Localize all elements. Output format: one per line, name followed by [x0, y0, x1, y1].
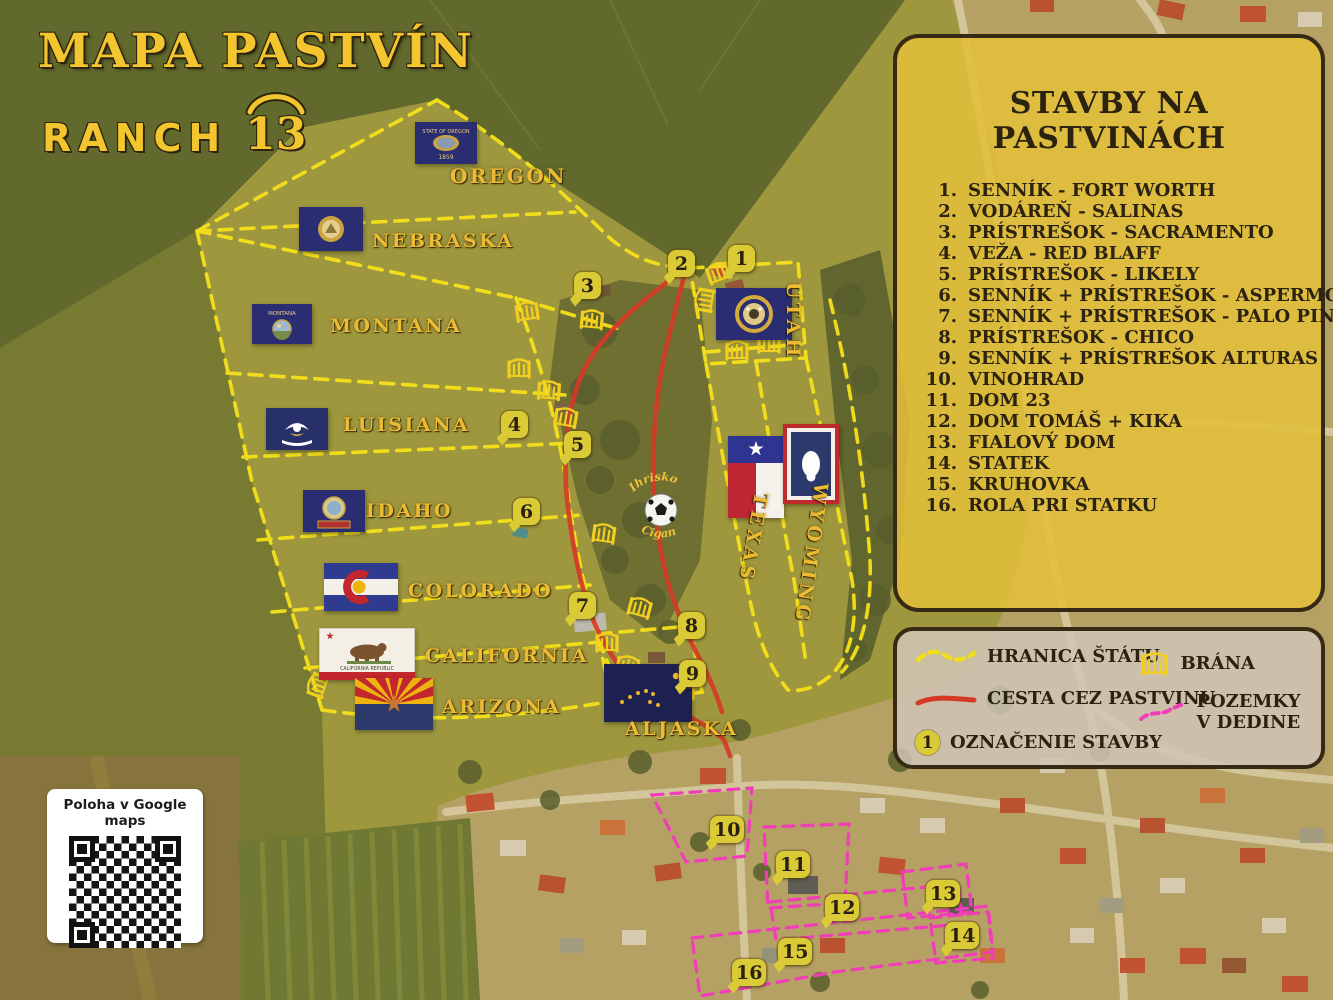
flag-nebraska-icon: [299, 207, 363, 255]
state-label-oregon: OREGON: [450, 164, 567, 188]
map-marker: 4: [501, 411, 528, 438]
qr-finder-icon: [69, 922, 95, 948]
map-marker: 16: [732, 959, 766, 986]
legend-item: 10.VINOHRAD: [917, 369, 1301, 390]
flag-idaho-icon: [303, 490, 365, 536]
flag-arizona-icon: [355, 678, 433, 734]
state-label-idaho: IDAHO: [366, 500, 453, 522]
legend-item: 14.STATEK: [917, 453, 1301, 474]
road-line-icon: [915, 691, 977, 707]
flag-louisiana-icon: [266, 408, 328, 454]
legend-item: 3.PRÍSTREŠOK - SACRAMENTO: [917, 222, 1301, 243]
ranch-brand-number: 13: [245, 109, 306, 160]
map-marker: 2: [668, 250, 695, 277]
flag-utah-icon: [716, 288, 792, 344]
brand-arc-icon: [242, 87, 310, 115]
state-label-montana: MONTANA: [330, 315, 462, 337]
boundary-line-icon: [915, 645, 977, 667]
legend-item: 15.KRUHOVKA: [917, 474, 1301, 495]
flag-colorado-icon: [324, 563, 398, 615]
state-label-nebraska: NEBRASKA: [372, 230, 515, 252]
legend-item: 9.SENNÍK + PRÍSTREŠOK ALTURAS: [917, 348, 1301, 369]
map-marker: 6: [513, 498, 540, 525]
legend-item: 6.SENNÍK + PRÍSTREŠOK - ASPERMONT: [917, 285, 1301, 306]
map-marker: 10: [710, 816, 744, 843]
ranch-brand-name: RANCH: [42, 116, 227, 160]
flag-california-icon: CALIFORNIA REPUBLIC: [319, 628, 415, 684]
map-marker: 15: [778, 938, 812, 965]
flag-montana-icon: MONTANA: [252, 304, 312, 348]
map-marker: 3: [574, 272, 601, 299]
legend-item: 11.DOM 23: [917, 390, 1301, 411]
page-title: MAPA PASTVÍN: [38, 24, 474, 79]
map-marker: 12: [825, 894, 859, 921]
map-title-block: MAPA PASTVÍN RANCH 13: [38, 24, 474, 160]
pasture-map: Ihrisko Cigan STATE OF OREGON 1859 MONTA…: [0, 0, 1333, 1000]
state-label-luisiana: LUISIANA: [343, 414, 470, 436]
google-maps-qr-card: Poloha v Google maps: [47, 789, 203, 943]
map-marker: 11: [776, 851, 810, 878]
qr-finder-icon: [69, 836, 95, 862]
legend-cesta: CESTA CEZ PASTVINU: [915, 688, 1138, 709]
legend-item: 7.SENNÍK + PRÍSTREŠOK - PALO PINTO: [917, 306, 1301, 327]
map-marker: 13: [926, 880, 960, 907]
legend-item: 13.FIALOVÝ DOM: [917, 432, 1301, 453]
state-label-arizona: ARIZONA: [442, 696, 561, 718]
california-flag-text: CALIFORNIA REPUBLIC: [340, 666, 395, 672]
ranch-brand-13: 13: [245, 93, 306, 160]
legend-item: 16.ROLA PRI STATKU: [917, 495, 1301, 516]
gate-legend-icon: [1138, 649, 1170, 677]
legend-item: 8.PRÍSTREŠOK - CHICO: [917, 327, 1301, 348]
montana-flag-text: MONTANA: [268, 311, 296, 317]
qr-finder-icon: [155, 836, 181, 862]
legend-item: 4.VEŽA - RED BLAFF: [917, 243, 1301, 264]
legend-pozemky: POZEMKYV DEDINE: [1138, 691, 1307, 733]
buildings-legend-panel: STAVBY NA PASTVINÁCH 1.SENNÍK - FORT WOR…: [893, 34, 1325, 612]
legend-panel-title: STAVBY NA PASTVINÁCH: [917, 86, 1301, 156]
map-marker: 8: [678, 612, 705, 639]
village-parcel-line-icon: [1138, 700, 1186, 724]
state-label-colorado: COLORADO: [408, 580, 553, 602]
legend-brana: BRÁNA: [1138, 649, 1307, 677]
legend-hranica-statu: HRANICA ŠTÁTU: [915, 645, 1138, 667]
map-marker: 7: [569, 592, 596, 619]
map-marker: 14: [945, 922, 979, 949]
map-marker: 1: [728, 245, 755, 272]
legend-item: 12.DOM TOMÁŠ + KIKA: [917, 411, 1301, 432]
map-symbols-legend: HRANICA ŠTÁTU CESTA CEZ PASTVINU 1 OZNAČ…: [893, 627, 1325, 769]
map-marker: 5: [564, 431, 591, 458]
state-label-utah: UTAH: [782, 282, 804, 360]
legend-oznacenie: 1 OZNAČENIE STAVBY: [915, 730, 1138, 755]
legend-item: 2.VODÁREŇ - SALINAS: [917, 201, 1301, 222]
state-label-aljaska: ALJASKA: [625, 718, 739, 740]
qr-code: [69, 836, 181, 948]
map-marker: 9: [679, 660, 706, 687]
legend-item: 5.PRÍSTREŠOK - LIKELY: [917, 264, 1301, 285]
qr-caption: Poloha v Google maps: [47, 797, 203, 829]
legend-item: 1.SENNÍK - FORT WORTH: [917, 180, 1301, 201]
building-badge-icon: 1: [915, 730, 940, 755]
state-label-california: CALIFORNIA: [425, 645, 589, 667]
